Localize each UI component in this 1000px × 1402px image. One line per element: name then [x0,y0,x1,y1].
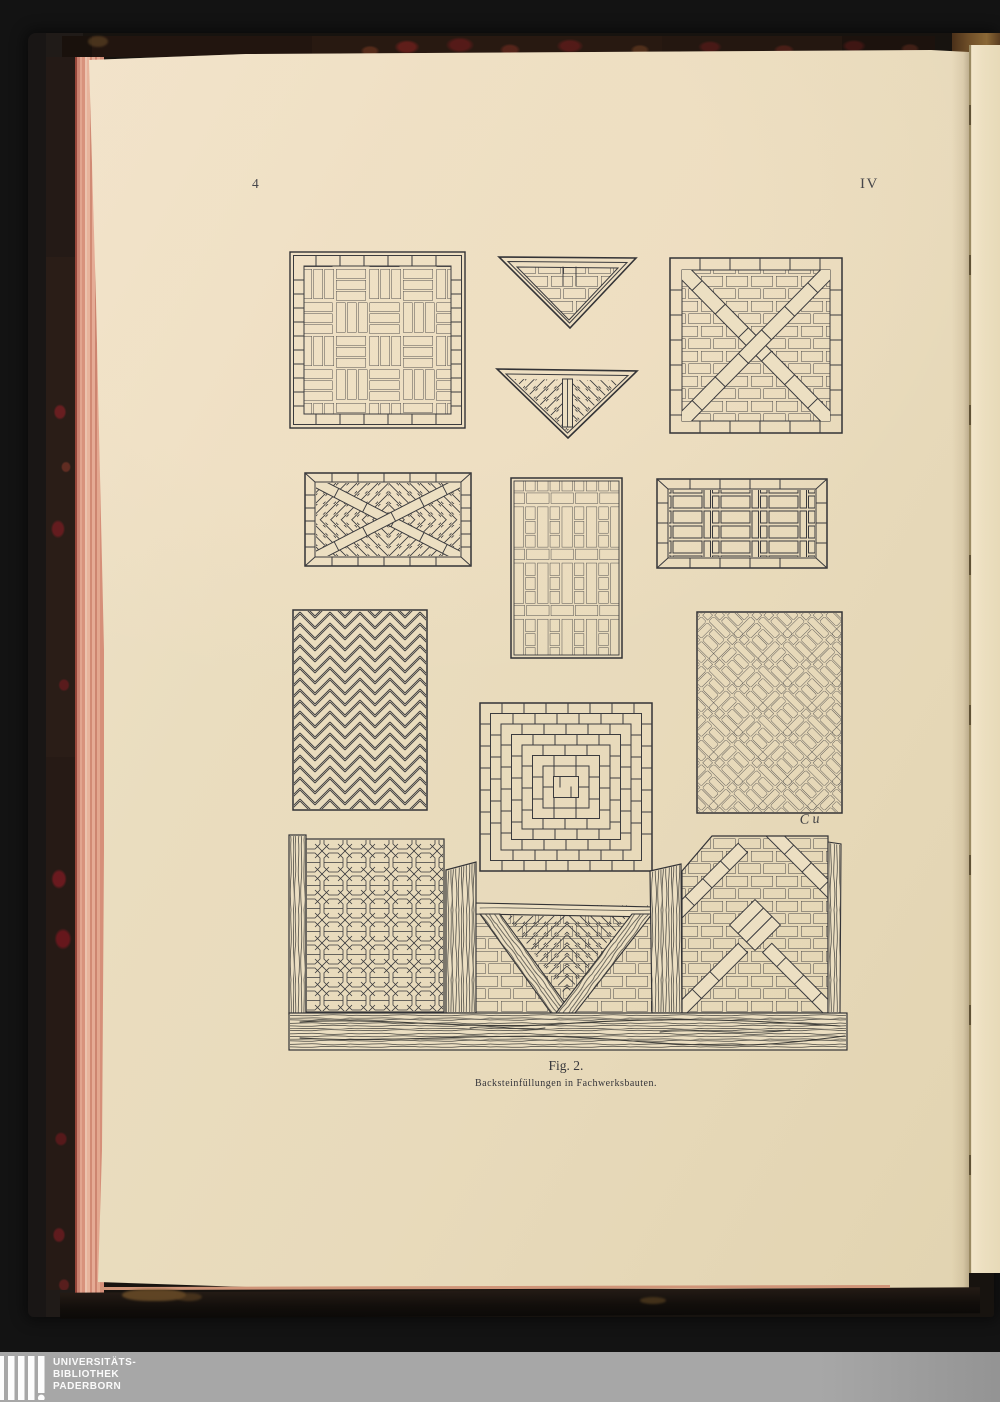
svg-text:C u: C u [799,812,820,828]
svg-text:Fig. 2.: Fig. 2. [549,1058,584,1073]
svg-text:Backsteinfüllungen in Fachwerk: Backsteinfüllungen in Fachwerksbauten. [475,1078,657,1089]
